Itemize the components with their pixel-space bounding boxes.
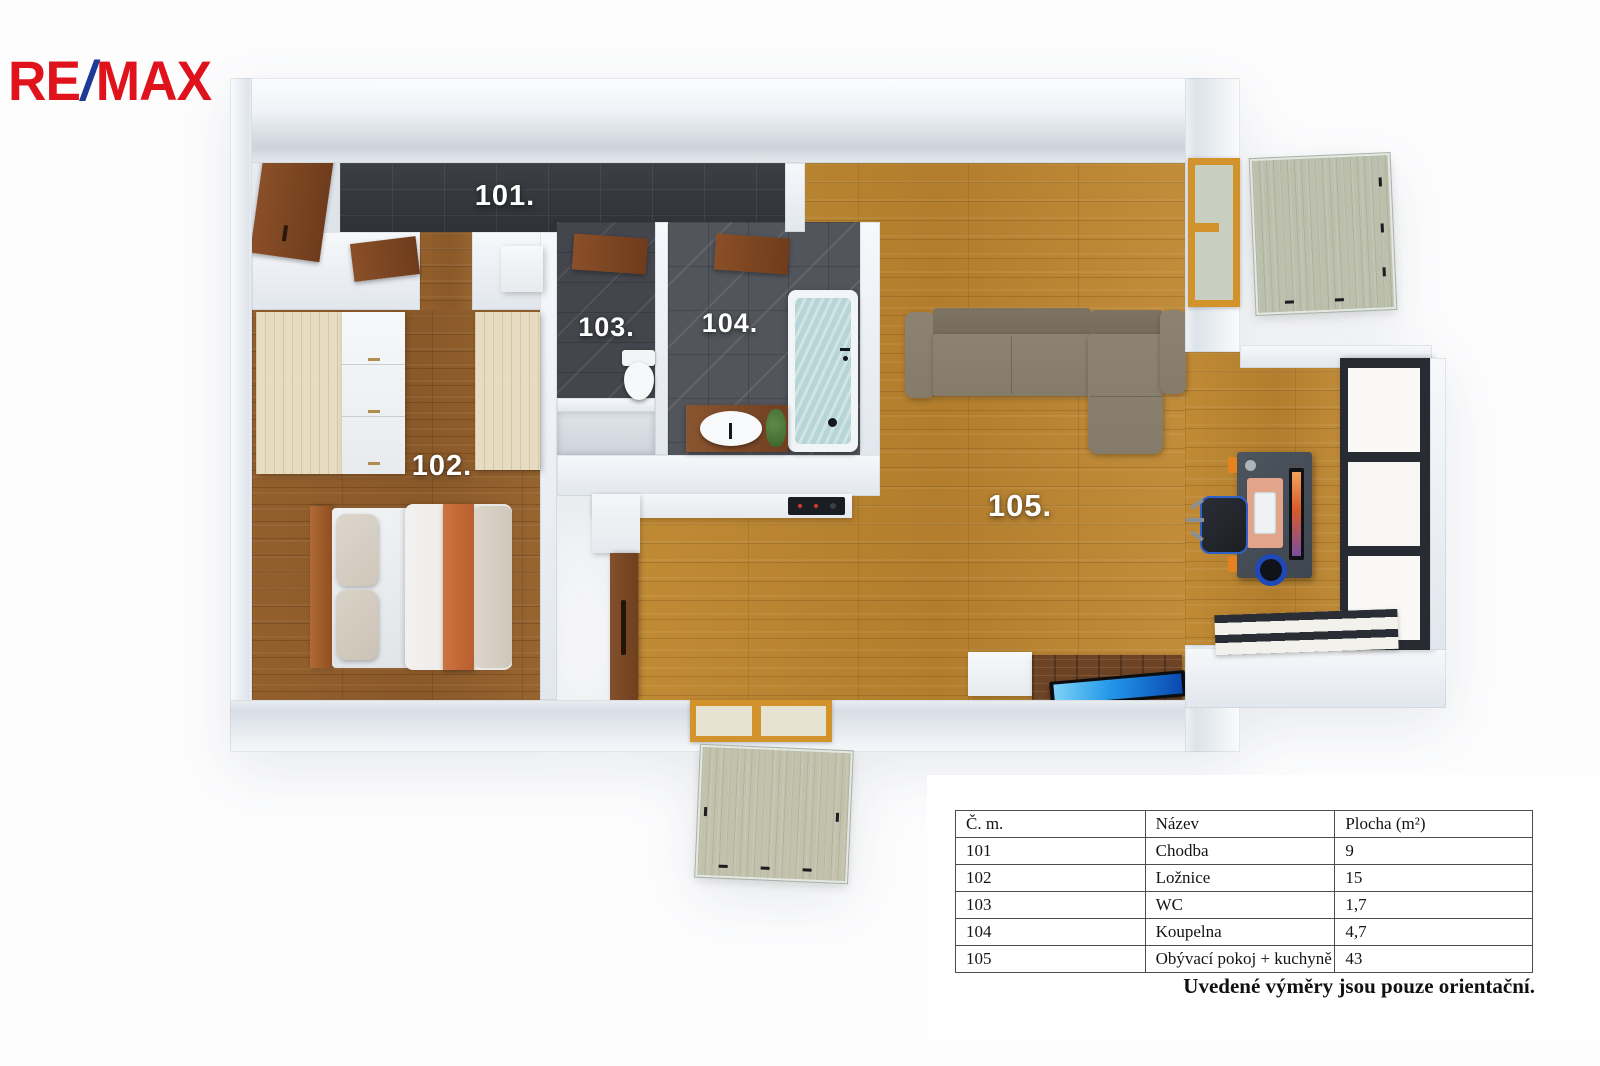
sofa-seat xyxy=(933,334,1091,396)
toilet xyxy=(618,350,655,402)
railing-clamp-icon xyxy=(803,868,812,871)
wc-door xyxy=(572,233,648,274)
room-number: 101 xyxy=(956,838,1146,865)
monitor xyxy=(1289,468,1304,560)
sofa-chaise xyxy=(1088,334,1163,454)
table-row: 104 Koupelna 4,7 xyxy=(956,919,1533,946)
toilet-bowl xyxy=(624,362,654,400)
door-handle-icon xyxy=(282,225,288,241)
sofa-back xyxy=(933,308,1091,336)
chair-leg-icon xyxy=(1186,518,1204,522)
bay-wall-outer xyxy=(1430,358,1446,650)
legend-col-area: Plocha (m²) xyxy=(1335,811,1533,838)
chair-seat xyxy=(1200,496,1248,554)
sofa-armrest-right xyxy=(1160,310,1186,394)
bed xyxy=(310,504,512,670)
plant-icon xyxy=(766,409,786,447)
bedroom-doorway-floor xyxy=(420,232,472,310)
sofa-armrest-left xyxy=(905,312,935,398)
bedroom-door xyxy=(350,236,420,282)
room-number: 102 xyxy=(956,865,1146,892)
keyboard xyxy=(1254,492,1276,534)
door-mullion xyxy=(752,706,761,736)
vanity-counter xyxy=(686,405,788,452)
duvet-fold xyxy=(474,506,512,668)
legend-col-name: Název xyxy=(1145,811,1335,838)
balcony-door xyxy=(1188,158,1240,307)
railing-clamp-icon xyxy=(1383,267,1386,276)
room-label-living: 105. xyxy=(960,488,1080,524)
drawer-line xyxy=(342,416,405,417)
fridge-handle-icon xyxy=(621,600,626,655)
room-name: Ložnice xyxy=(1145,865,1335,892)
room-area: 43 xyxy=(1335,946,1533,973)
room-label-hallway: 101. xyxy=(455,180,555,213)
cooktop-burner-icon xyxy=(798,504,802,508)
gaming-chair xyxy=(1186,490,1250,556)
bed-runner xyxy=(443,504,474,670)
wall-hall-living xyxy=(785,163,805,232)
tv-cabinet xyxy=(968,652,1032,696)
mug-icon xyxy=(1245,460,1256,471)
legend-table: Č. m. Název Plocha (m²) 101 Chodba 9 102… xyxy=(955,810,1533,973)
railing-clamp-icon xyxy=(761,866,770,869)
room-number: 105 xyxy=(956,946,1146,973)
room-number: 104 xyxy=(956,919,1146,946)
mousepad xyxy=(1247,478,1283,548)
room-area: 1,7 xyxy=(1335,892,1533,919)
storage-niche xyxy=(557,412,655,455)
wall-left xyxy=(230,78,252,752)
wall-bath-living xyxy=(860,222,880,460)
bay-window-bottom xyxy=(1214,609,1398,655)
fridge-cabinet xyxy=(610,553,638,700)
room-number: 103 xyxy=(956,892,1146,919)
room-name: WC xyxy=(1145,892,1335,919)
sofa-seam xyxy=(1011,336,1012,394)
terrace-door xyxy=(690,700,832,742)
headphones-icon xyxy=(1255,554,1287,586)
wall-bedroom-right xyxy=(540,232,557,700)
legend-panel: Č. m. Název Plocha (m²) 101 Chodba 9 102… xyxy=(927,775,1600,1040)
kitchen-counter-corner xyxy=(592,494,640,553)
room-label-bedroom: 102. xyxy=(392,450,492,483)
drawer-handle-icon xyxy=(368,358,380,361)
hallway-cabinet xyxy=(501,246,543,292)
bathroom-door xyxy=(714,233,790,274)
railing-clamp-icon xyxy=(1285,300,1294,303)
door-mullion xyxy=(1195,223,1219,232)
wardrobe-left xyxy=(256,312,342,474)
railing-clamp-icon xyxy=(1379,177,1382,186)
legend-note: Uvedené výměry jsou pouze orientační. xyxy=(1002,974,1535,999)
pillow xyxy=(336,590,378,660)
floor-plan-page: RE/MAX xyxy=(0,0,1600,1066)
cooktop-knob-icon xyxy=(830,503,836,509)
table-row: 102 Ložnice 15 xyxy=(956,865,1533,892)
wall-kitchen-band xyxy=(557,455,880,496)
cooktop xyxy=(788,497,845,515)
room-area: 15 xyxy=(1335,865,1533,892)
room-area: 9 xyxy=(1335,838,1533,865)
balcony xyxy=(1250,153,1397,315)
table-row: 103 WC 1,7 xyxy=(956,892,1533,919)
railing-clamp-icon xyxy=(1381,223,1384,232)
room-label-wc: 103. xyxy=(558,312,655,343)
bay-wall-bottom xyxy=(1185,648,1446,708)
railing-clamp-icon xyxy=(836,813,839,822)
room-name: Chodba xyxy=(1145,838,1335,865)
railing-clamp-icon xyxy=(719,865,728,868)
table-row: 105 Obývací pokoj + kuchyně 43 xyxy=(956,946,1533,973)
bathtub-faucet-icon xyxy=(840,348,850,351)
sofa xyxy=(905,308,1186,454)
monitor-screen xyxy=(1292,472,1301,556)
drawer-handle-icon xyxy=(368,462,380,465)
bathtub xyxy=(788,290,858,452)
sofa-back xyxy=(1091,310,1163,336)
pillow xyxy=(336,514,378,586)
bed-headboard xyxy=(310,506,332,668)
room-area: 4,7 xyxy=(1335,919,1533,946)
railing-clamp-icon xyxy=(1335,298,1344,301)
railing-clamp-icon xyxy=(704,807,707,816)
bathtub-drain-icon xyxy=(843,356,848,361)
sofa-seam xyxy=(1090,396,1162,397)
bay-window-right xyxy=(1340,358,1432,650)
cooktop-burner-icon xyxy=(814,504,818,508)
drawer-line xyxy=(342,364,405,365)
wall-wc-bath xyxy=(655,222,668,455)
room-name: Koupelna xyxy=(1145,919,1335,946)
window-pane xyxy=(1348,368,1420,452)
basin-tap-icon xyxy=(729,423,732,439)
drawer-handle-icon xyxy=(368,410,380,413)
room-label-bathroom: 104. xyxy=(684,308,776,339)
wardrobe-right xyxy=(475,312,540,470)
wall-top xyxy=(230,78,1240,163)
bathtub-water xyxy=(795,298,851,444)
window-pane xyxy=(1348,462,1420,546)
room-name: Obývací pokoj + kuchyně xyxy=(1145,946,1335,973)
desk-clamp-icon xyxy=(1228,556,1237,572)
desk-clamp-icon xyxy=(1228,457,1237,473)
table-row: 101 Chodba 9 xyxy=(956,838,1533,865)
terrace xyxy=(695,745,853,884)
hand-shower-icon xyxy=(828,418,837,427)
legend-col-number: Č. m. xyxy=(956,811,1146,838)
